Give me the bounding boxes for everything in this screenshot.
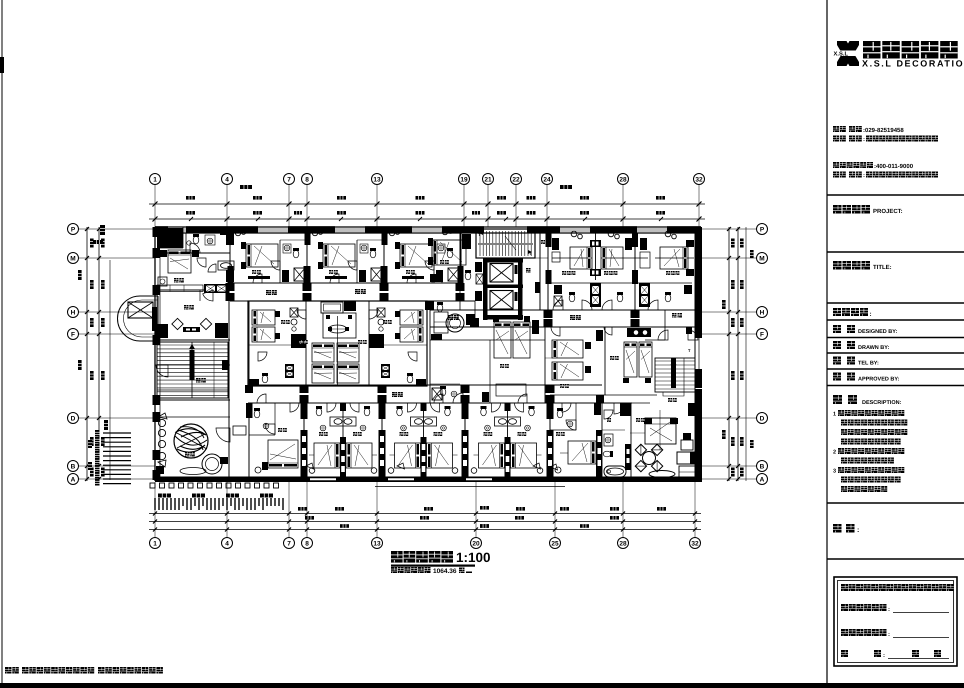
svg-text::: : xyxy=(870,311,872,318)
svg-text:1: 1 xyxy=(153,177,157,184)
svg-text:A: A xyxy=(71,477,76,484)
svg-text::: : xyxy=(857,527,859,534)
svg-text:8: 8 xyxy=(305,541,309,548)
svg-text:13: 13 xyxy=(373,541,381,548)
svg-text:7: 7 xyxy=(287,177,291,184)
svg-text:4: 4 xyxy=(225,177,229,184)
svg-text:F: F xyxy=(71,332,75,339)
svg-text:1: 1 xyxy=(833,412,836,418)
svg-text:TEL BY:: TEL BY: xyxy=(858,361,879,367)
svg-text:28: 28 xyxy=(619,177,627,184)
svg-text::: : xyxy=(888,607,890,613)
svg-text::: : xyxy=(888,632,890,638)
svg-text:APPROVED BY:: APPROVED BY: xyxy=(858,377,900,383)
svg-text:19: 19 xyxy=(460,177,468,184)
svg-text::400-011-9000: :400-011-9000 xyxy=(874,163,914,170)
svg-text:8: 8 xyxy=(305,177,309,184)
svg-text:13: 13 xyxy=(373,177,381,184)
svg-text:B: B xyxy=(71,464,76,471)
svg-text:PROJECT:: PROJECT: xyxy=(873,208,903,215)
svg-text:M: M xyxy=(70,256,75,263)
svg-text:32: 32 xyxy=(695,177,703,184)
svg-text::: : xyxy=(883,653,885,659)
svg-text:2: 2 xyxy=(833,450,836,456)
svg-text:32: 32 xyxy=(691,541,699,548)
svg-text:H: H xyxy=(71,310,76,317)
svg-text:DESIGNED BY:: DESIGNED BY: xyxy=(858,329,897,335)
svg-text:A: A xyxy=(760,477,765,484)
svg-text:D: D xyxy=(71,416,76,423)
svg-text:1064.36: 1064.36 xyxy=(433,568,457,575)
svg-text:X.S.L: X.S.L xyxy=(834,50,849,57)
svg-text:28: 28 xyxy=(619,541,627,548)
svg-text:B: B xyxy=(760,464,765,471)
svg-text::: : xyxy=(863,137,865,143)
svg-text:1:100: 1:100 xyxy=(456,550,491,565)
svg-text:DESCRIPTION:: DESCRIPTION: xyxy=(862,400,902,406)
svg-text:7: 7 xyxy=(287,541,291,548)
svg-text:F: F xyxy=(760,332,764,339)
svg-text:22: 22 xyxy=(512,177,520,184)
svg-text:P: P xyxy=(71,227,76,234)
svg-text:H: H xyxy=(760,310,765,317)
svg-text:DRAWN BY:: DRAWN BY: xyxy=(858,345,890,351)
svg-text:D: D xyxy=(760,416,765,423)
svg-text:25: 25 xyxy=(551,541,559,548)
svg-text:3: 3 xyxy=(833,469,836,475)
svg-text:1: 1 xyxy=(153,541,157,548)
svg-text:24: 24 xyxy=(543,177,551,184)
svg-text:21: 21 xyxy=(484,177,492,184)
svg-text::029-82519458: :029-82519458 xyxy=(863,127,904,134)
svg-text:20: 20 xyxy=(472,541,480,548)
svg-text:M: M xyxy=(759,256,764,263)
svg-text:4: 4 xyxy=(225,541,229,548)
svg-text::: : xyxy=(863,173,865,179)
svg-text:TITLE:: TITLE: xyxy=(873,264,892,271)
svg-text:X.S.L DECORATIO: X.S.L DECORATIO xyxy=(862,59,964,69)
svg-text:P: P xyxy=(760,227,765,234)
